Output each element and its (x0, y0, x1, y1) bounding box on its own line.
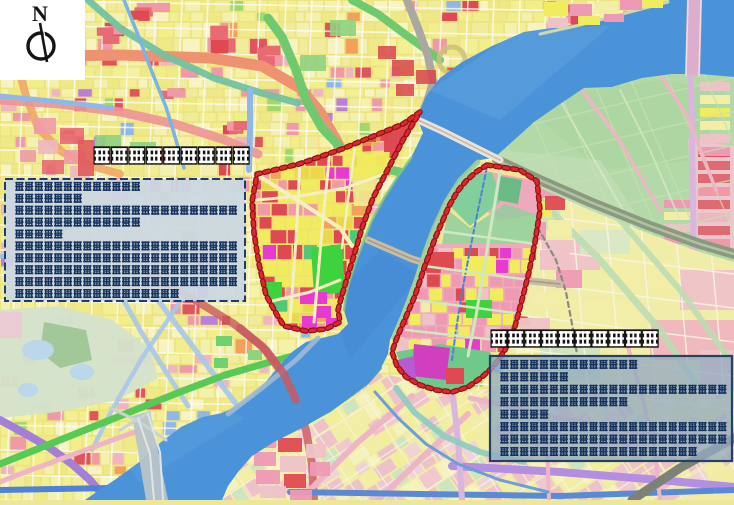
svg-text:N: N (32, 1, 48, 26)
